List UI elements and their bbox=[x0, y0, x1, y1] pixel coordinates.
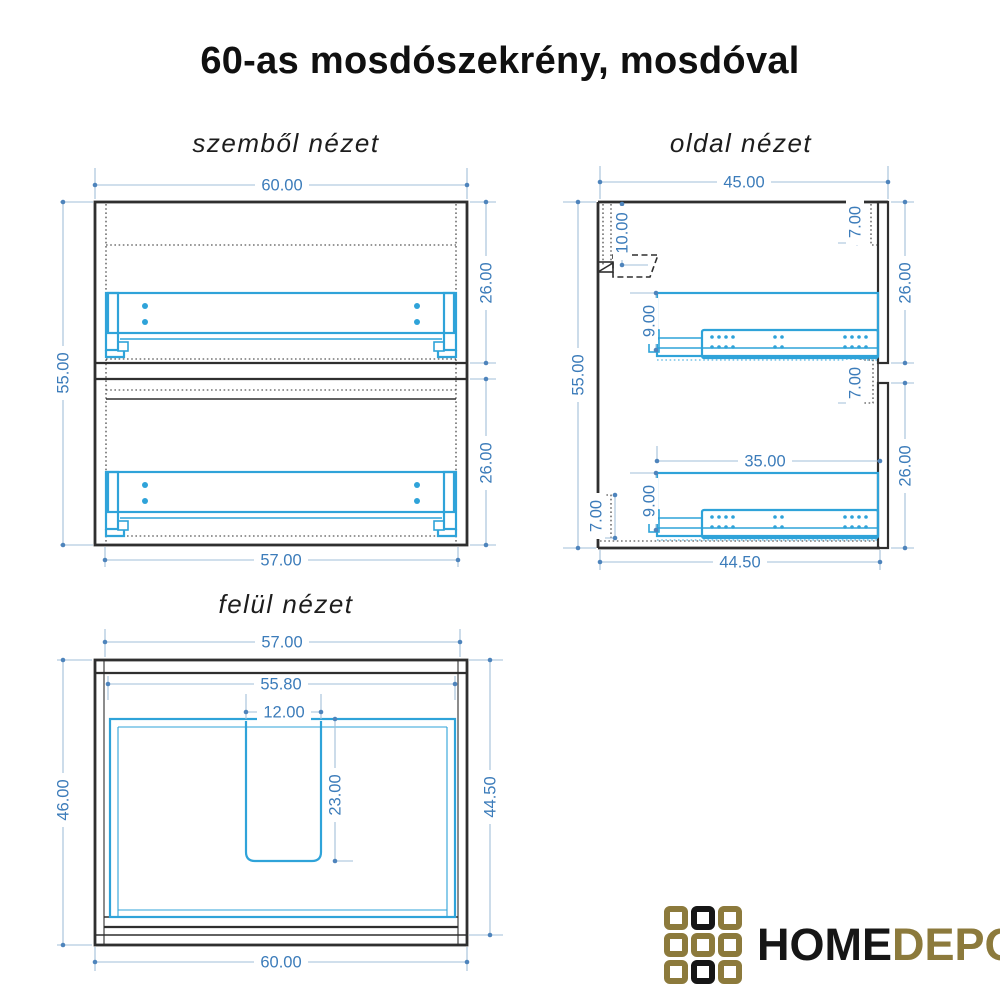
dim-label: 10.00 bbox=[614, 212, 632, 253]
dim-label: 23.00 bbox=[327, 774, 345, 815]
dimension-side-sink-inset: 10.00 bbox=[613, 202, 648, 268]
logo-grid-cell-gold bbox=[718, 933, 742, 957]
dimension-side-top-reveal: 7.00 bbox=[838, 199, 865, 245]
dimension-side-slide-length: 35.00 bbox=[655, 446, 883, 471]
logo-grid-cell-gold bbox=[664, 960, 688, 984]
dim-label: 35.00 bbox=[744, 453, 785, 471]
dim-label: 26.00 bbox=[897, 445, 915, 486]
top-view-dimensions: 57.00 55.80 12.00 bbox=[54, 629, 503, 972]
dim-label: 57.00 bbox=[260, 552, 301, 570]
logo-grid-cell-black bbox=[691, 906, 715, 930]
logo-text: HOMEDEPO bbox=[757, 919, 1000, 971]
dim-label: 26.00 bbox=[478, 442, 496, 483]
wall-bracket bbox=[598, 262, 613, 272]
dimension-top-depth-right: 44.50 bbox=[469, 658, 503, 938]
dim-label: 12.00 bbox=[263, 704, 304, 722]
dim-label: 55.80 bbox=[260, 676, 301, 694]
dimension-top-width-bottom: 60.00 bbox=[93, 947, 470, 972]
technical-drawing: 60.00 55.00 26.00 bbox=[0, 0, 1000, 1000]
logo-grid-cell-gold bbox=[691, 933, 715, 957]
top-view-cabinet-below bbox=[110, 719, 455, 917]
logo-word-home: HOME bbox=[757, 919, 892, 970]
dim-label: 45.00 bbox=[723, 174, 764, 192]
dimension-side-plinth-height: 7.00 bbox=[587, 493, 617, 541]
dimension-front-height-left: 55.00 bbox=[54, 200, 93, 548]
front-view-upper-drawer bbox=[106, 293, 456, 357]
dim-label: 9.00 bbox=[641, 305, 659, 337]
dim-label: 60.00 bbox=[260, 954, 301, 972]
dim-label: 60.00 bbox=[261, 177, 302, 195]
front-view-dimensions: 60.00 55.00 26.00 bbox=[54, 168, 496, 570]
front-view-cabinet bbox=[95, 202, 467, 545]
logo-grid-cell-gold bbox=[718, 960, 742, 984]
dim-label: 44.50 bbox=[482, 776, 500, 817]
front-view: 60.00 55.00 26.00 bbox=[54, 168, 496, 570]
dim-label: 26.00 bbox=[478, 262, 496, 303]
dimension-front-width-bottom: 57.00 bbox=[103, 547, 461, 570]
dimension-side-lower-rail-offset: 9.00 bbox=[630, 471, 659, 533]
logo: HOMEDEPO bbox=[664, 906, 1000, 984]
side-view-lower-drawer bbox=[649, 473, 878, 540]
logo-word-depo: DEPO bbox=[892, 919, 1000, 970]
side-view: 45.00 55.00 10.00 bbox=[563, 166, 915, 572]
dimension-front-lower-drawer-height: 26.00 bbox=[470, 377, 496, 548]
dimension-top-width-top: 57.00 bbox=[103, 629, 463, 657]
dim-label: 55.00 bbox=[570, 354, 588, 395]
dim-label: 26.00 bbox=[897, 262, 915, 303]
top-view: 57.00 55.80 12.00 bbox=[54, 629, 503, 972]
dim-label: 7.00 bbox=[588, 500, 606, 532]
side-view-upper-drawer bbox=[649, 293, 878, 360]
dimension-side-depth-bottom: 44.50 bbox=[598, 550, 883, 572]
dimension-top-inner-width: 55.80 bbox=[106, 675, 458, 700]
dimension-side-upper-drawer-height: 26.00 bbox=[891, 200, 915, 366]
dimension-top-depth-left: 46.00 bbox=[54, 658, 92, 948]
logo-grid-icon bbox=[664, 906, 742, 984]
dimension-top-cutout-width: 12.00 bbox=[244, 694, 324, 722]
dimension-side-mid-reveal: 7.00 bbox=[838, 360, 865, 406]
dim-label: 7.00 bbox=[847, 367, 865, 399]
dim-label: 44.50 bbox=[719, 554, 760, 572]
logo-grid-cell-gold bbox=[664, 933, 688, 957]
sink-cutout bbox=[246, 721, 321, 861]
dimension-front-upper-drawer-height: 26.00 bbox=[470, 200, 496, 366]
dim-label: 57.00 bbox=[261, 634, 302, 652]
dim-label: 55.00 bbox=[55, 352, 73, 393]
front-view-lower-drawer bbox=[106, 472, 456, 536]
dim-label: 46.00 bbox=[55, 779, 73, 820]
logo-grid-cell-gold bbox=[664, 906, 688, 930]
dim-label: 7.00 bbox=[847, 206, 865, 238]
dim-label: 9.00 bbox=[641, 485, 659, 517]
dimension-top-cutout-depth: 23.00 bbox=[326, 717, 353, 864]
dimension-side-lower-drawer-height: 26.00 bbox=[891, 381, 915, 551]
dimension-side-depth-top: 45.00 bbox=[598, 166, 891, 199]
logo-grid-cell-gold bbox=[718, 906, 742, 930]
logo-grid-cell-black bbox=[691, 960, 715, 984]
dimension-side-upper-rail-offset: 9.00 bbox=[630, 291, 659, 353]
dimension-front-width-top: 60.00 bbox=[93, 168, 470, 199]
